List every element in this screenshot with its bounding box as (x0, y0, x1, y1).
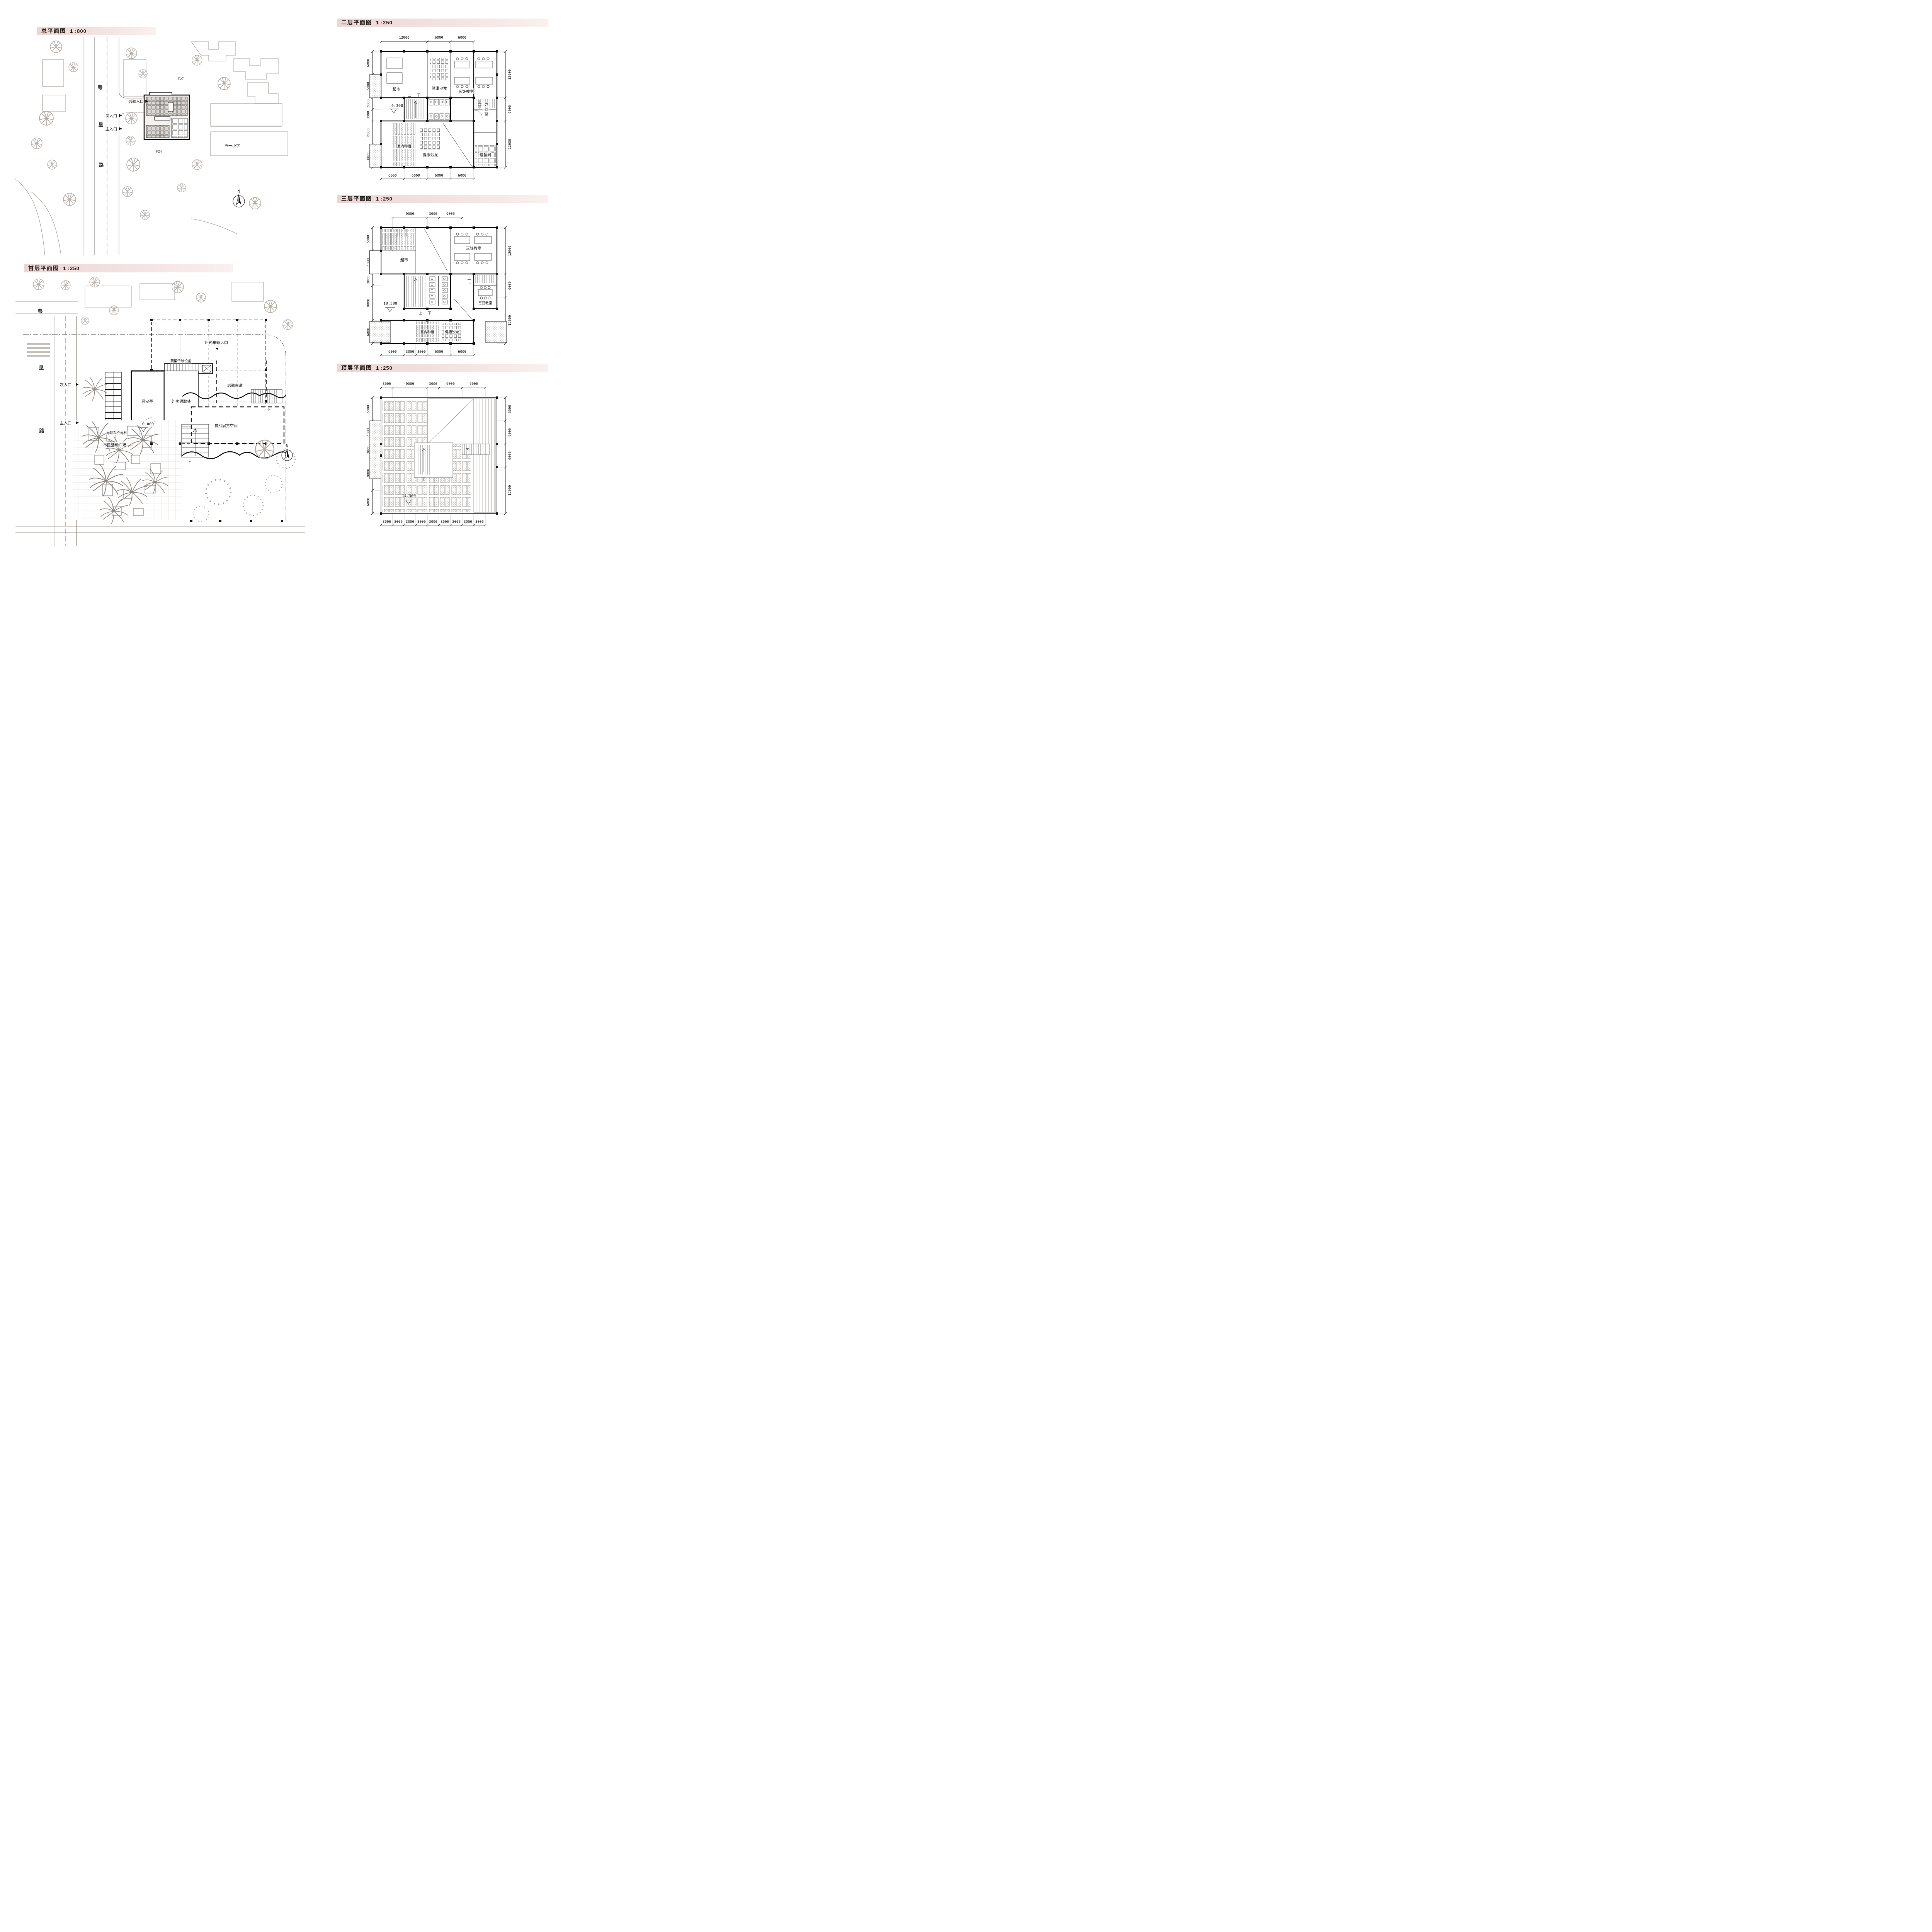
site-north-label: N (238, 189, 240, 194)
floor2-stair-up-label: 上 (407, 93, 411, 98)
floor2-dim-left-3: 3000 (367, 99, 371, 108)
floor3-dim-right-1: 12000 (508, 245, 512, 256)
site-entry-service-label: 后勤入口 (128, 99, 144, 104)
floortop-dim-top-2: 9000 (406, 382, 414, 386)
floor1-stair-up-label: 上 (187, 459, 191, 464)
floortop-dim-left-2: 6000 (367, 428, 371, 437)
floortop-dim-bottom-1: 3000 (383, 520, 391, 524)
floor2-dim-top-1: 12000 (399, 36, 409, 40)
floor2-scale: 1 :250 (376, 20, 393, 26)
floor2-dim-left-2: 6000 (367, 82, 371, 90)
floor3-health-salon-label: 健康沙龙 (445, 330, 459, 335)
floor3-cooking-top-label: 烹饪教室 (466, 245, 482, 251)
floor3-dim-right-3: 12000 (508, 315, 512, 325)
floor3-dim-top-3: 6000 (446, 212, 455, 216)
site-entry-secondary-label: 次入口 (105, 113, 117, 119)
floor1-civic-plaza-label: 市民活动广场 (103, 442, 127, 448)
drawing-sheet: { "common": {"up": "上", "down": "下", "no… (0, 0, 603, 557)
floor3-title-banner: 三层平面图1 :250 (337, 195, 548, 203)
floor1-road-char-3: 路 (39, 427, 44, 434)
floortop-dim-top-3: 3000 (429, 382, 437, 386)
floor1-entry-main-label: 主入口 (60, 420, 72, 426)
floor3-dim-bottom-2: 3000 (406, 350, 414, 354)
floor3-stair-up-label: 上 (418, 311, 422, 316)
floor2-dim-right-1: 12000 (508, 69, 512, 80)
floortop-dim-top-1: 3000 (383, 382, 391, 386)
floor2-dim-bottom-2: 6000 (412, 174, 420, 178)
site-road-char-3: 路 (99, 161, 104, 168)
floor1-panel: 首层平面图1 :250 (15, 263, 309, 554)
floor3-dim-left-3: 3000 (367, 276, 371, 284)
floor2-office-label: 办公室 (483, 102, 489, 116)
floor3-dim-bottom-3: 3000 (417, 350, 426, 354)
floor2-stair-down-label: 下 (417, 93, 421, 98)
floor3-drawing (338, 206, 547, 363)
floor3-dim-right-2: 6000 (508, 281, 512, 290)
floor1-entry-service-vehicle-label: 后勤车辆入口 (204, 340, 228, 345)
floor1-ev-charging-label: 电动车充电桩 (106, 430, 128, 435)
floortop-dim-bottom-6: 3000 (440, 520, 449, 524)
floor2-title: 二层平面图 (341, 19, 372, 26)
floortop-dim-right-3: 6000 (508, 451, 512, 460)
floor3-dim-bottom-5: 6000 (458, 350, 466, 354)
floortop-level-value: 14.300 (402, 494, 416, 498)
floortop-dim-right-2: 6000 (508, 428, 512, 437)
floortop-dim-bottom-7: 3000 (452, 520, 461, 524)
floor3-panel: 三层平面图1 :250 (335, 194, 552, 364)
floor2-health-salon-top-label: 健康沙龙 (431, 85, 447, 91)
floor3-indoor-planting-label: 室内种植 (420, 330, 435, 335)
floor2-dim-bottom-4: 6000 (458, 174, 466, 178)
floortop-scale: 1 :250 (376, 365, 393, 371)
floor2-dim-top-2: 6000 (435, 36, 443, 40)
floor1-stair-up2-label: 上 (267, 407, 271, 412)
floortop-panel: 顶层平面图1 :250 (335, 363, 552, 555)
floor3-stair-down-label: 下 (427, 311, 432, 316)
floortop-dim-bottom-2: 3000 (394, 520, 403, 524)
floor1-scale: 1 :250 (63, 265, 80, 271)
floor3-scale: 1 :250 (376, 196, 393, 202)
site-entry-secondary-arrow-icon: ▶ (119, 114, 122, 118)
floortop-dim-right-1: 6000 (508, 405, 512, 413)
floor2-dim-right-3: 12000 (508, 139, 512, 149)
floor2-equipment-label: 设备间 (479, 152, 492, 158)
floortop-title: 顶层平面图 (341, 365, 372, 371)
floor1-entry-secondary-arrow-icon: ▶ (76, 383, 79, 387)
site-plan-panel: 总平面图1 :800 (15, 23, 298, 263)
floortop-dim-bottom-8: 3000 (464, 520, 472, 524)
floor3-dim-left-4: 9000 (367, 299, 371, 307)
floortop-stair-down-label: 下 (422, 477, 426, 482)
floor3-level-value: 10.300 (383, 302, 397, 306)
site-plan-title-banner: 总平面图1 :800 (37, 27, 156, 35)
floor3-dim-left-5: 6000 (367, 328, 371, 336)
floor1-nature-exhibit-label: 自然展览空间 (214, 423, 238, 429)
floor2-stair2-down-label: 下 (478, 105, 482, 110)
floor3-dim-top-2: 3000 (429, 212, 437, 216)
floor3-stair2-up-label: 上 (467, 276, 471, 281)
floor2-dim-left-4: 3000 (367, 111, 371, 119)
floor1-level-value: 0.000 (142, 422, 154, 427)
floortop-title-banner: 顶层平面图1 :250 (337, 364, 548, 372)
floor1-service-lane-label: 后勤车道 (227, 383, 243, 388)
floor2-indoor-planting-label: 室内种植 (397, 144, 412, 149)
floortop-stair2-down-label: 下 (465, 447, 469, 452)
floortop-dim-bottom-4: 3000 (417, 520, 426, 524)
floor3-dim-left-1: 6000 (367, 235, 371, 243)
floor1-entry-service-vehicle-arrow-icon: ▼ (215, 347, 219, 352)
floor2-dim-bottom-3: 6000 (435, 174, 443, 178)
floortop-dim-left-4: 9000 (367, 469, 371, 477)
floor2-title-banner: 二层平面图1 :250 (337, 19, 548, 27)
floor1-drawing (15, 274, 305, 546)
floor3-dim-left-2: 6000 (367, 258, 371, 267)
floor1-entry-secondary-label: 次入口 (60, 382, 72, 388)
floor2-dim-left-5: 6000 (367, 128, 371, 137)
floor2-dim-right-2: 6000 (508, 105, 512, 114)
floor1-road-char-1: 粤 (37, 307, 43, 315)
floor1-road-char-2: 垦 (39, 364, 44, 371)
floor1-entry-main-arrow-icon: ▶ (76, 421, 79, 425)
site-plan-scale: 1 :800 (70, 28, 87, 34)
floortop-dim-left-1: 6000 (367, 405, 371, 413)
floor3-market-label: 超市 (400, 257, 408, 263)
floortop-dim-left-5: 6000 (367, 498, 371, 506)
floor3-cooking-small-label: 烹饪教室 (478, 301, 493, 306)
site-bldg-f27-label: F27 (177, 77, 184, 81)
floor1-guard-booth-label: 保安亭 (141, 398, 153, 404)
floor3-stair2-down-label: 下 (467, 281, 471, 286)
floortop-dim-right-4: 12000 (508, 485, 512, 495)
floortop-dim-bottom-5: 3000 (429, 520, 437, 524)
floor1-title: 首层平面图 (28, 265, 59, 271)
floor2-drawing (338, 30, 547, 187)
site-plan-title: 总平面图 (41, 28, 66, 34)
floor1-veg-conveyor-label: 蔬菜传输设备 (170, 359, 192, 364)
site-plan-drawing (15, 37, 294, 255)
floor3-dim-bottom-4: 6000 (435, 350, 443, 354)
floortop-dim-top-5: 6000 (469, 382, 478, 386)
floor2-stair2-up-label: 上 (478, 100, 482, 105)
floor2-dim-bottom-1: 6000 (388, 174, 397, 178)
floor2-level-value: 6.300 (391, 104, 403, 108)
floor1-takeout-pickup-label: 外卖领取处 (171, 398, 191, 404)
floor3-title: 三层平面图 (341, 196, 372, 202)
floor2-dim-top-3: 6000 (458, 36, 466, 40)
site-entry-service-arrow-icon: ▶ (145, 99, 148, 104)
floor1-north-label: N (286, 444, 289, 449)
floor2-health-salon-bottom-label: 健康沙龙 (422, 152, 439, 158)
floor1-title-banner: 首层平面图1 :250 (24, 264, 233, 272)
site-road-char-2: 垦 (98, 121, 103, 128)
floor2-dim-left-6: 6000 (367, 151, 371, 160)
site-entry-main-label: 主入口 (105, 126, 117, 132)
floor2-panel: 二层平面图1 :250 (335, 19, 552, 189)
floor2-market-label: 超市 (392, 86, 401, 92)
floor3-dim-top-1: 9000 (406, 212, 414, 216)
floortop-dim-bottom-3: 3000 (406, 520, 414, 524)
site-bldg-f24-label: F24 (155, 150, 162, 153)
floor2-cooking-label: 烹饪教室 (458, 88, 474, 94)
site-school-label: 五一小学 (224, 143, 240, 148)
floortop-dim-left-3: 3000 (367, 446, 371, 454)
floortop-dim-bottom-9: 3000 (475, 520, 484, 524)
floor2-dim-left-1: 6000 (367, 59, 371, 67)
floortop-dim-top-4: 6000 (446, 382, 455, 386)
floortop-drawing (338, 376, 547, 537)
site-entry-main-arrow-icon: ▶ (119, 127, 122, 131)
floor3-dim-bottom-1: 6000 (388, 350, 397, 354)
site-road-char-1: 粤 (97, 83, 102, 91)
